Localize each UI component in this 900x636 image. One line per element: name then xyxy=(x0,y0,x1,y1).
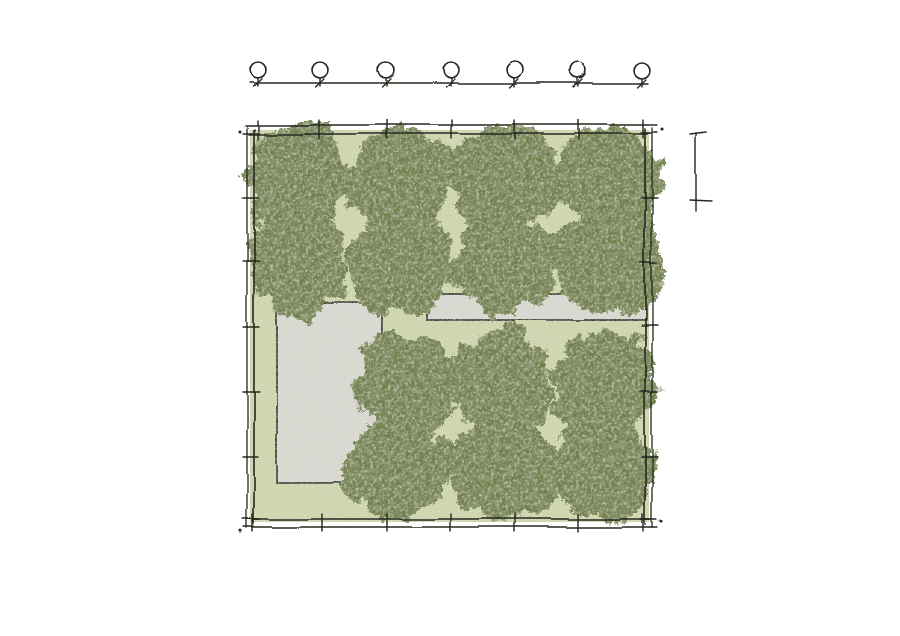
drawing-page xyxy=(0,0,900,636)
canopy-blob xyxy=(550,222,613,285)
canopy-blob xyxy=(353,255,415,317)
post-marker-icon xyxy=(250,62,266,78)
canopy-blob xyxy=(591,333,651,393)
post-marker-icon xyxy=(312,62,328,78)
canopy-blob xyxy=(586,460,646,520)
scale-bar-tick xyxy=(690,200,712,201)
canopy-blob xyxy=(268,260,328,320)
post-marker-icon xyxy=(506,62,522,78)
canopy-blob xyxy=(280,123,342,185)
reference-dot xyxy=(660,128,663,131)
post-marker-icon xyxy=(570,62,586,78)
canopy-blob xyxy=(450,240,510,300)
scale-bar-tick xyxy=(690,133,706,135)
landscape-site-plan xyxy=(0,0,900,636)
canopy-blob xyxy=(474,326,536,388)
reference-dot xyxy=(239,529,242,532)
reference-dot xyxy=(238,129,241,132)
post-marker-icon xyxy=(635,62,651,78)
canopy-blob xyxy=(363,332,422,391)
post-marker-icon xyxy=(442,62,458,78)
reference-dot xyxy=(659,519,662,522)
post-marker-icon xyxy=(378,62,394,78)
tree-canopy xyxy=(447,416,559,521)
canopy-blob xyxy=(395,136,455,196)
canopy-blob xyxy=(395,433,455,493)
